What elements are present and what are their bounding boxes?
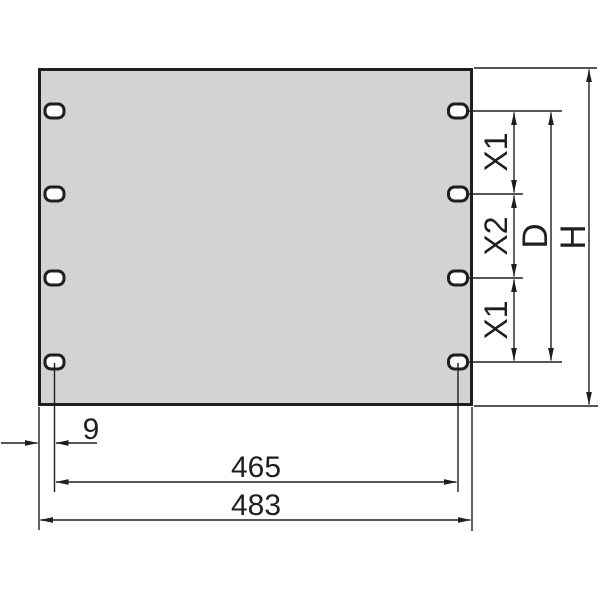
dim-label-x1-top: X1 [478, 132, 514, 171]
dim-label-9: 9 [83, 413, 100, 446]
mounting-slot-left-3 [45, 271, 64, 285]
dim-label-x1-bottom: X1 [478, 300, 514, 339]
mounting-slot-right-2 [449, 187, 468, 201]
dim-label-d: D [516, 223, 555, 248]
dim-label-483: 483 [231, 489, 281, 522]
dim-label-465: 465 [231, 451, 281, 484]
panel-face [40, 70, 472, 405]
technical-drawing-page: X1 X2 X1 D H 9 465 483 [0, 0, 600, 600]
mounting-slot-right-3 [449, 271, 468, 285]
dim-label-h: H [554, 224, 593, 249]
mounting-slot-left-1 [45, 104, 64, 118]
rack-panel-drawing: X1 X2 X1 D H 9 465 483 [0, 0, 600, 600]
mounting-slot-right-1 [449, 104, 468, 118]
mounting-slot-left-2 [45, 187, 64, 201]
dim-label-x2: X2 [478, 216, 514, 255]
